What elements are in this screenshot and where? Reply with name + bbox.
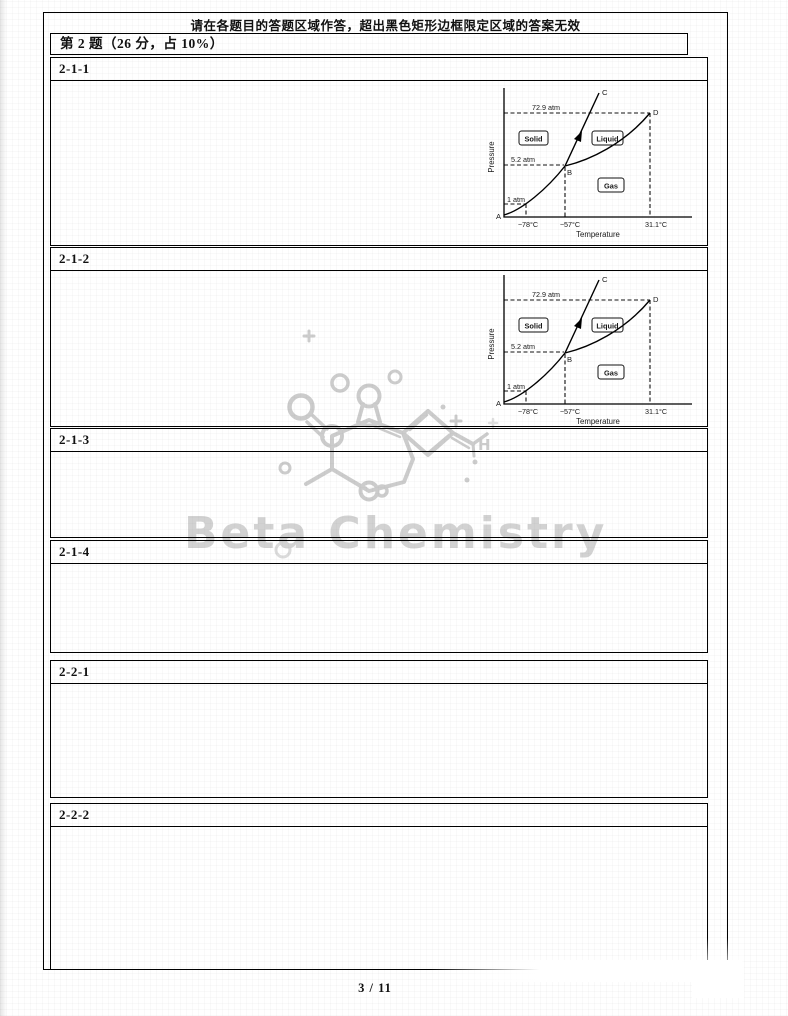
y-axis-label: Pressure	[487, 141, 496, 172]
phase-diagram-1: Pressure Temperature 72.9 atm 5.2 atm 1 …	[486, 86, 699, 241]
tick-1-atm: 1 atm	[507, 195, 525, 204]
point-a-label: A	[496, 399, 502, 408]
tick-minus-57C: −57°C	[560, 220, 580, 229]
tick-minus-78C: −78°C	[518, 220, 538, 229]
section-2-1-2: 2-1-2 Pressure	[50, 247, 708, 427]
answer-area-2-1-1[interactable]: Pressure Temperature 72.9 atm 5.2 atm 1 …	[51, 81, 707, 245]
point-a-label: A	[496, 212, 502, 221]
region-gas-label: Gas	[604, 182, 618, 191]
section-2-1-3: 2-1-3	[50, 428, 708, 538]
tick-72-9-atm: 72.9 atm	[532, 290, 560, 299]
dashed-guide-lines	[504, 300, 650, 404]
section-2-2-1: 2-2-1	[50, 660, 708, 798]
page-number: 3 / 11	[43, 981, 707, 996]
tick-72-9-atm: 72.9 atm	[532, 103, 560, 112]
tick-5-2-atm: 5.2 atm	[511, 155, 535, 164]
section-2-2-2: 2-2-2	[50, 803, 708, 970]
question-title: 第 2 题（26 分，占 10%）	[50, 33, 688, 55]
dashed-guide-lines	[504, 113, 650, 217]
arrow-up-icon	[574, 131, 582, 142]
section-label-2-1-1: 2-1-1	[51, 58, 707, 81]
region-gas-label: Gas	[604, 369, 618, 378]
section-2-1-1: 2-1-1 Pressure	[50, 57, 708, 246]
tick-1-atm: 1 atm	[507, 382, 525, 391]
section-label-2-1-3: 2-1-3	[51, 429, 707, 452]
point-c-label: C	[602, 275, 608, 284]
answer-area-2-2-1[interactable]	[51, 684, 707, 797]
point-d-label: D	[653, 295, 659, 304]
tick-31-1C: 31.1°C	[645, 220, 667, 229]
scan-shadow-left-edge	[0, 0, 7, 1016]
answer-area-2-1-4[interactable]	[51, 564, 707, 652]
y-axis-label: Pressure	[487, 328, 496, 359]
answer-area-2-1-3[interactable]	[51, 452, 707, 537]
answer-area-2-2-2[interactable]	[51, 827, 707, 969]
tick-minus-78C: −78°C	[518, 407, 538, 416]
x-axis-label: Temperature	[576, 417, 620, 426]
point-c-label: C	[602, 88, 608, 97]
region-solid-label: Solid	[524, 322, 543, 331]
answer-sheet-page: H Beta Chemistry 请在各题目的答题区域作答，超出黑色矩形边框限定…	[0, 0, 788, 1016]
region-solid-label: Solid	[524, 135, 543, 144]
section-label-2-1-4: 2-1-4	[51, 541, 707, 564]
point-b-label: B	[567, 168, 572, 177]
header-notice: 请在各题目的答题区域作答，超出黑色矩形边框限定区域的答案无效	[43, 15, 728, 34]
point-d-label: D	[653, 108, 659, 117]
region-liquid-label: Liquid	[596, 135, 619, 144]
tick-31-1C: 31.1°C	[645, 407, 667, 416]
region-liquid-label: Liquid	[596, 322, 619, 331]
section-label-2-2-1: 2-2-1	[51, 661, 707, 684]
arrow-up-icon	[574, 318, 582, 329]
tick-minus-57C: −57°C	[560, 407, 580, 416]
answer-area-2-1-2[interactable]: Pressure Temperature 72.9 atm 5.2 atm 1 …	[51, 271, 707, 426]
phase-diagram-2: Pressure Temperature 72.9 atm 5.2 atm 1 …	[486, 273, 699, 427]
section-label-2-2-2: 2-2-2	[51, 804, 707, 827]
tick-5-2-atm: 5.2 atm	[511, 342, 535, 351]
section-2-1-4: 2-1-4	[50, 540, 708, 653]
point-b-label: B	[567, 355, 572, 364]
section-label-2-1-2: 2-1-2	[51, 248, 707, 271]
x-axis-label: Temperature	[576, 230, 620, 239]
